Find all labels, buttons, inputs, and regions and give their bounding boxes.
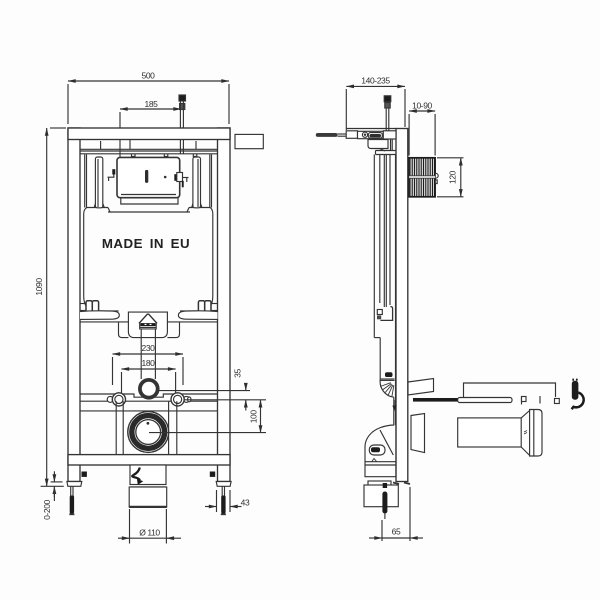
svg-text:65: 65	[392, 527, 401, 537]
svg-text:43: 43	[241, 498, 250, 508]
svg-text:10-90: 10-90	[412, 101, 432, 111]
svg-text:1090: 1090	[34, 278, 44, 296]
svg-text:500: 500	[142, 71, 156, 81]
svg-text:100: 100	[249, 410, 259, 424]
svg-text:Ø 110: Ø 110	[139, 528, 160, 538]
svg-text:120: 120	[448, 170, 458, 184]
svg-text:140-235: 140-235	[361, 76, 390, 86]
svg-text:MADE IN EU: MADE IN EU	[102, 236, 190, 251]
svg-text:180: 180	[142, 358, 156, 368]
svg-text:35: 35	[233, 369, 243, 378]
svg-text:185: 185	[145, 99, 159, 109]
svg-text:0-200: 0-200	[42, 499, 52, 519]
svg-text:230: 230	[142, 343, 156, 353]
